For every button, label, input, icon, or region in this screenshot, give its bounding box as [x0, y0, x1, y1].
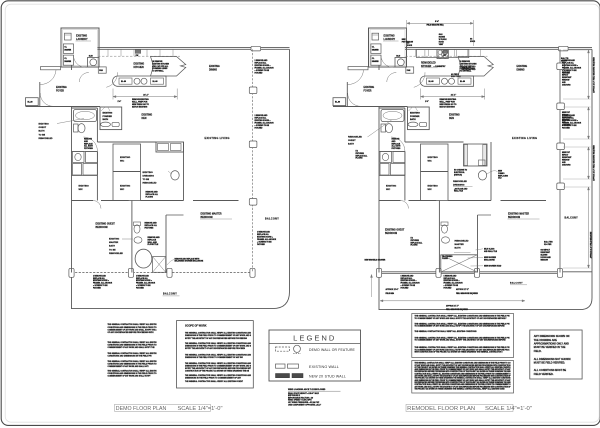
svg-text:CLEAR: CLEAR: [442, 257, 449, 260]
svg-text:AND WALL TILE: AND WALL TILE: [484, 250, 498, 253]
svg-text:THE GENERAL CONTRACTOR SHALL V: THE GENERAL CONTRACTOR SHALL VERIFY ALL …: [185, 342, 251, 345]
svg-text:THE GENERAL CONTRACTOR SHALL V: THE GENERAL CONTRACTOR SHALL VERIFY ALL …: [108, 323, 157, 326]
svg-text:FIELD VERIFIED.: FIELD VERIFIED.: [534, 373, 554, 376]
svg-text:BL-80: BL-80: [335, 102, 340, 104]
svg-text:WIC: WIC: [428, 161, 433, 163]
svg-text:EXISTING: EXISTING: [79, 186, 90, 188]
svg-text:COMMENCEMENT OF ANY WORK AND S: COMMENCEMENT OF ANY WORK AND SHALL NOTIF…: [108, 346, 156, 349]
svg-text:DIMENSIONS IN THE FIELD PRIOR: DIMENSIONS IN THE FIELD PRIOR TO COMMENC…: [185, 356, 243, 359]
svg-text:PGT WINDOW: PGT WINDOW: [402, 42, 414, 44]
svg-text:EXISTING: EXISTING: [103, 113, 113, 115]
svg-text:BALCONY: BALCONY: [565, 217, 579, 220]
svg-text:TO BE: TO BE: [143, 179, 150, 181]
svg-text:MATCH EXISTING: MATCH EXISTING: [440, 106, 456, 109]
svg-text:BL-80: BL-80: [153, 81, 158, 83]
svg-text:BALCONY: BALCONY: [510, 282, 523, 285]
svg-text:THE GENERAL CONTRACTOR SHALL V: THE GENERAL CONTRACTOR SHALL VERIFY ALL …: [108, 369, 157, 372]
svg-text:CONDITIONS AND DIMENSIONS IN T: CONDITIONS AND DIMENSIONS IN THE FIELD P…: [108, 372, 157, 375]
svg-text:POWDER: POWDER: [410, 116, 420, 118]
svg-text:NEW 2X STUD WALL: NEW 2X STUD WALL: [309, 375, 346, 379]
svg-text:CONDITIONS AND DIMENSIONS IN T: CONDITIONS AND DIMENSIONS IN THE FIELD P…: [108, 344, 157, 347]
svg-text:OF ANY DISCREPANCIES BEFORE PR: OF ANY DISCREPANCIES BEFORE PROCEEDING W…: [108, 331, 154, 334]
svg-text:LAUNDRY: LAUNDRY: [76, 38, 88, 41]
svg-text:WIC: WIC: [120, 161, 125, 163]
svg-text:FLOORS: FLOORS: [411, 245, 419, 247]
svg-text:DEN: DEN: [449, 118, 454, 120]
svg-text:EXISTING: EXISTING: [428, 186, 439, 188]
svg-text:BATH: BATH: [109, 245, 115, 248]
svg-text:TO COMMENCEMENT OF ANY WORK AN: TO COMMENCEMENT OF ANY WORK AND SHALL NO…: [415, 339, 507, 342]
svg-text:MASTER: MASTER: [109, 241, 119, 244]
svg-text:PATCHED: PATCHED: [401, 286, 410, 289]
svg-text:NEW W/SHIELD SHOWER: NEW W/SHIELD SHOWER: [365, 259, 386, 261]
svg-text:EXISTING MASTER: EXISTING MASTER: [201, 213, 222, 216]
svg-text:EXISTING: EXISTING: [410, 113, 420, 115]
svg-text:REMODELED: REMODELED: [39, 138, 53, 140]
svg-text:DIMENSIONS IN THE FIELD PRIOR: DIMENSIONS IN THE FIELD PRIOR TO COMMENC…: [185, 377, 242, 380]
svg-text:WIC: WIC: [79, 189, 84, 191]
svg-text:MASTER: MASTER: [455, 243, 465, 246]
svg-text:CONDITIONS AND DIMENSIONS IN T: CONDITIONS AND DIMENSIONS IN THE FIELD P…: [108, 362, 157, 365]
svg-text:DIMENSIONS IN THE FIELD PRIOR: DIMENSIONS IN THE FIELD PRIOR TO COMMENC…: [185, 334, 252, 337]
svg-text:NOTIFY THE ARCHITECT OF ANY DI: NOTIFY THE ARCHITECT OF ANY DISCREPANCIE…: [185, 347, 245, 350]
svg-text:EXISTING LIVING: EXISTING LIVING: [205, 137, 230, 140]
svg-text:BEDROOM: BEDROOM: [96, 227, 108, 229]
svg-text:BL-80: BL-80: [429, 81, 434, 83]
svg-text:REMODELED: REMODELED: [348, 137, 362, 139]
svg-text:SCOPE OF WORK: SCOPE OF WORK: [185, 325, 207, 328]
svg-text:APPROX 13'-6": APPROX 13'-6": [386, 288, 399, 291]
svg-text:DIMENSIONS IN THE FIELD PRIOR: DIMENSIONS IN THE FIELD PRIOR TO COMMENC…: [185, 364, 252, 367]
svg-text:THE GENERAL CONTRACTOR SHALL V: THE GENERAL CONTRACTOR SHALL VERIFY ALL …: [185, 362, 251, 365]
svg-text:EXISTING MASTER: EXISTING MASTER: [508, 213, 529, 216]
svg-text:DEMO FLOOR PLAN: DEMO FLOOR PLAN: [116, 406, 167, 412]
svg-text:MUST BE VERIFIED IN THE: MUST BE VERIFIED IN THE: [534, 346, 566, 349]
svg-text:THE GENERAL CONTRACTOR SHALL V: THE GENERAL CONTRACTOR SHALL VERIFY ALL …: [108, 360, 157, 363]
svg-text:BATH: BATH: [103, 118, 109, 121]
svg-text:KITCHEN: KITCHEN: [421, 66, 432, 68]
svg-text:USE COMPONENT OPPOSITE +35-2": USE COMPONENT OPPOSITE +35-2": [288, 404, 321, 406]
svg-text:BATH: BATH: [455, 247, 461, 250]
svg-text:BATH: BATH: [410, 118, 416, 121]
svg-text:THE GENERAL CONTRACTOR SHALL V: THE GENERAL CONTRACTOR SHALL VERIFY ALL …: [185, 353, 251, 356]
svg-text:REMODELED: REMODELED: [109, 253, 123, 255]
svg-text:CONSTRUCTION OF THE PROJECT AS: CONSTRUCTION OF THE PROJECT AS SHOWN ON …: [185, 370, 250, 373]
svg-text:THE GENERAL CONTRACTOR SHALL V: THE GENERAL CONTRACTOR SHALL VERIFY ALL …: [108, 341, 157, 344]
svg-text:CONDITIONS AND DIMENSIONS IN T: CONDITIONS AND DIMENSIONS IN THE FIELD P…: [108, 354, 152, 357]
svg-text:LEGEND: LEGEND: [293, 334, 336, 343]
svg-text:31-6 PER: 31-6 PER: [544, 244, 552, 246]
svg-text:EXISTING: EXISTING: [428, 157, 439, 159]
svg-text:EXISTING: EXISTING: [386, 186, 397, 188]
svg-text:ENCLOSURE: ENCLOSURE: [484, 260, 495, 262]
svg-text:SCALE 1/4"=1'-0": SCALE 1/4"=1'-0": [485, 406, 532, 412]
svg-text:21'-1": 21'-1": [143, 95, 148, 97]
svg-text:REMODELED: REMODELED: [453, 181, 467, 183]
svg-text:APPROXIMATIONS ONLY AND: APPROXIMATIONS ONLY AND: [534, 343, 569, 346]
svg-text:REM PP: REM PP: [561, 61, 568, 63]
svg-text:FIXTURES: FIXTURES: [145, 227, 155, 229]
svg-text:EXISTING GUEST: EXISTING GUEST: [385, 230, 405, 232]
svg-text:TO BE: TO BE: [109, 249, 116, 251]
svg-text:HOOD: HOOD: [470, 41, 476, 43]
svg-text:REMODELED: REMODELED: [455, 241, 469, 243]
svg-text:PATCHED: PATCHED: [136, 286, 145, 289]
svg-text:DOOR: DOOR: [407, 45, 413, 47]
svg-text:8'-4": 8'-4": [435, 20, 439, 23]
svg-text:EXISTING: EXISTING: [120, 186, 131, 188]
svg-text:TO COMMENCEMENT OF ANY WORK AN: TO COMMENCEMENT OF ANY WORK AND SHALL NO…: [415, 317, 508, 320]
svg-text:TO DRYWALL: TO DRYWALL: [460, 70, 473, 73]
svg-text:MATCH EXISTING: MATCH EXISTING: [132, 106, 148, 109]
svg-text:EXISTING: EXISTING: [39, 124, 50, 126]
svg-text:TO BE: TO BE: [39, 134, 46, 136]
svg-text:REMODELED: REMODELED: [421, 62, 436, 64]
svg-text:KITCHEN: KITCHEN: [134, 67, 145, 69]
svg-text:WITH CONSTRUCTION OF THE PROJE: WITH CONSTRUCTION OF THE PROJECT AS SHOW…: [415, 350, 504, 353]
svg-text:ANCHORS: ANCHORS: [562, 164, 571, 167]
svg-text:BEDROOM: BEDROOM: [201, 217, 213, 219]
svg-text:WIC: WIC: [386, 189, 391, 191]
svg-text:DRESSING: DRESSING: [453, 184, 465, 186]
svg-text:EXISTING: EXISTING: [109, 239, 120, 241]
svg-text:BL-80: BL-80: [460, 81, 465, 83]
svg-text:DRESSING: DRESSING: [143, 176, 155, 178]
svg-text:DINING: DINING: [209, 70, 217, 72]
svg-text:WALL TILE: WALL TILE: [454, 190, 464, 193]
svg-text:EXISTING: EXISTING: [209, 66, 220, 68]
svg-text:APPROX 31'-6" FIELD MEASURE: APPROX 31'-6" FIELD MEASURE: [590, 231, 593, 258]
svg-text:ALL DIMENSIONS NOT SHOWN: ALL DIMENSIONS NOT SHOWN: [534, 358, 571, 361]
svg-text:ANCHORS: ANCHORS: [562, 124, 571, 127]
svg-text:FOYER: FOYER: [56, 91, 64, 93]
svg-text:EXISTING: EXISTING: [517, 66, 528, 68]
svg-text:FLOORS: FLOORS: [356, 158, 364, 160]
svg-text:NEW SHOWER HEAD: NEW SHOWER HEAD: [484, 265, 502, 268]
svg-text:REMODEL FLOOR PLAN: REMODEL FLOOR PLAN: [407, 406, 475, 412]
svg-text:ENLARGED SHOWER ENCLOSURE: ENLARGED SHOWER ENCLOSURE: [175, 260, 204, 263]
svg-text:NOTIFY THE ARCHITECT OF ANY DI: NOTIFY THE ARCHITECT OF ANY DISCREPANCIE…: [185, 337, 247, 340]
svg-text:EXISTING: EXISTING: [364, 87, 375, 89]
svg-text:BATH: BATH: [348, 143, 354, 146]
svg-text:THE GENERAL CONTRACTOR SHALL V: THE GENERAL CONTRACTOR SHALL VERIFY ALL …: [185, 380, 244, 383]
svg-text:COMMENCEMENT OF ANY WORK AND S: COMMENCEMENT OF ANY WORK AND SHALL NOTI: [108, 365, 149, 368]
svg-text:BEDROOM: BEDROOM: [508, 217, 520, 219]
svg-text:FIELD.: FIELD.: [534, 350, 542, 353]
svg-text:EXISTING: EXISTING: [143, 172, 154, 174]
svg-text:FLOOR TILE: FLOOR TILE: [148, 244, 159, 246]
svg-text:APPROX 11'-8" FIELD MEASURE RE: APPROX 11'-8" FIELD MEASURE REQUIRED: [593, 144, 596, 180]
svg-text:THE GENERAL CONTRACTOR SHALL V: THE GENERAL CONTRACTOR SHALL VERIFY ALL …: [415, 330, 478, 333]
svg-text:DEMO WALL OR FEATURE: DEMO WALL OR FEATURE: [309, 348, 356, 352]
svg-text:EXISTING GUEST: EXISTING GUEST: [96, 224, 116, 226]
svg-text:FLOORS: FLOORS: [146, 196, 154, 198]
svg-text:ANCHORS: ANCHORS: [562, 84, 571, 87]
svg-text:POWDER: POWDER: [103, 116, 113, 118]
svg-text:CONDITIONS AND DIMENSIONS IN T: CONDITIONS AND DIMENSIONS IN THE FIELD P…: [108, 326, 157, 329]
svg-text:WIND LOADING ASCE 7-22 ENCLOSE: WIND LOADING ASCE 7-22 ENCLOSED: [288, 388, 326, 391]
svg-text:21'-1": 21'-1": [451, 95, 456, 97]
svg-text:TO COMMENCEMENT OF ANY WORK AN: TO COMMENCEMENT OF ANY WORK AND SHALL NO…: [415, 325, 506, 328]
svg-text:THE GENERAL CONTRACTOR SHALL V: THE GENERAL CONTRACTOR SHALL VERIFY ALL …: [185, 374, 251, 377]
svg-text:APPROX 11'-8" FIELD MEASURE RE: APPROX 11'-8" FIELD MEASURE REQUIRED: [593, 56, 596, 92]
svg-text:FIXTURES: FIXTURES: [392, 148, 402, 150]
svg-text:ALL CONDITIONS MUST BE: ALL CONDITIONS MUST BE: [534, 369, 567, 372]
svg-text:BL-80: BL-80: [121, 81, 126, 83]
svg-text:EXISTING: EXISTING: [142, 115, 153, 117]
svg-text:1'-6": 1'-6": [118, 101, 122, 103]
svg-text:GUEST: GUEST: [348, 140, 356, 142]
svg-text:FOYER: FOYER: [364, 91, 372, 93]
svg-text:THE GENERAL CONTRACTOR SHALL V: THE GENERAL CONTRACTOR SHALL VERIFY ALL …: [185, 332, 251, 335]
svg-text:APPROX 17'-7": APPROX 17'-7": [446, 305, 459, 308]
svg-text:PATCHED: PATCHED: [255, 127, 264, 130]
svg-text:GUEST: GUEST: [39, 127, 47, 129]
svg-text:NOTIFY THE ARCHITECT OF ANY DI: NOTIFY THE ARCHITECT OF ANY DISCREPANCIE…: [185, 367, 252, 370]
svg-text:PATCHED: PATCHED: [444, 286, 453, 289]
svg-text:PATCHED: PATCHED: [93, 286, 102, 289]
svg-text:PATCHED: PATCHED: [255, 72, 264, 75]
svg-text:COMMENCEMENT OF ANY WORK AND S: COMMENCEMENT OF ANY WORK AND SHALL NOTIF…: [108, 375, 152, 378]
svg-text:BATH: BATH: [39, 130, 45, 133]
svg-text:BEDROOM: BEDROOM: [385, 233, 397, 235]
svg-text:EXISTING LIVING: EXISTING LIVING: [512, 137, 537, 140]
svg-text:PATCHED: PATCHED: [257, 243, 266, 246]
svg-text:DINING: DINING: [517, 70, 525, 72]
svg-text:PATCHED: PATCHED: [562, 127, 571, 130]
svg-text:THE GENERAL CONTRACTOR SHALL V: THE GENERAL CONTRACTOR SHALL VERIFY ALL …: [108, 352, 157, 355]
svg-text:TO DRYWALL: TO DRYWALL: [152, 70, 165, 73]
svg-text:WINDOW: WINDOW: [541, 260, 549, 262]
svg-text:DIMENSIONS IN THE FIELD PRIOR: DIMENSIONS IN THE FIELD PRIOR TO COMMENC…: [185, 344, 252, 347]
svg-text:BALCONY: BALCONY: [163, 293, 177, 296]
svg-text:REMODELED: REMODELED: [143, 183, 157, 185]
svg-text:LAUNDRY: LAUNDRY: [384, 38, 396, 41]
svg-text:+ CABINETRY: + CABINETRY: [434, 65, 447, 68]
svg-text:BL-80: BL-80: [28, 102, 33, 104]
svg-text:COMMENCEMENT OF ANY WORK AND S: COMMENCEMENT OF ANY WORK AND SHALL NOTIF…: [108, 328, 157, 331]
svg-text:EXISTING: EXISTING: [56, 87, 67, 89]
svg-text:EXISTING: EXISTING: [120, 157, 131, 159]
svg-text:EXISTING: EXISTING: [134, 63, 145, 65]
svg-text:BALCONY: BALCONY: [265, 218, 279, 221]
svg-text:1'-6": 1'-6": [425, 101, 429, 103]
svg-text:THE PROJECT AS SHOWN ON THESE: THE PROJECT AS SHOWN ON THESE DRAWINGS T…: [415, 388, 505, 391]
svg-text:ANY DIMENSIONS SHOWN ON: ANY DIMENSIONS SHOWN ON: [534, 335, 570, 338]
svg-text:FIXTURES: FIXTURES: [84, 148, 94, 150]
svg-text:THE DRAWING ARE: THE DRAWING ARE: [534, 339, 557, 342]
svg-text:APPROX 17'-2": APPROX 17'-2": [456, 288, 469, 291]
svg-text:EXISTING WALL: EXISTING WALL: [309, 365, 339, 369]
svg-text:EXISTING: EXISTING: [449, 115, 460, 117]
svg-text:WIC: WIC: [120, 189, 125, 191]
svg-text:SCALE 1/4"=1'-0": SCALE 1/4"=1'-0": [178, 406, 223, 412]
svg-text:MUST BE FIELD VERIFIED.: MUST BE FIELD VERIFIED.: [534, 362, 566, 365]
svg-text:(SWITCH): (SWITCH): [454, 174, 462, 176]
svg-text:DEN: DEN: [142, 118, 147, 120]
svg-text:WIC: WIC: [428, 189, 433, 191]
